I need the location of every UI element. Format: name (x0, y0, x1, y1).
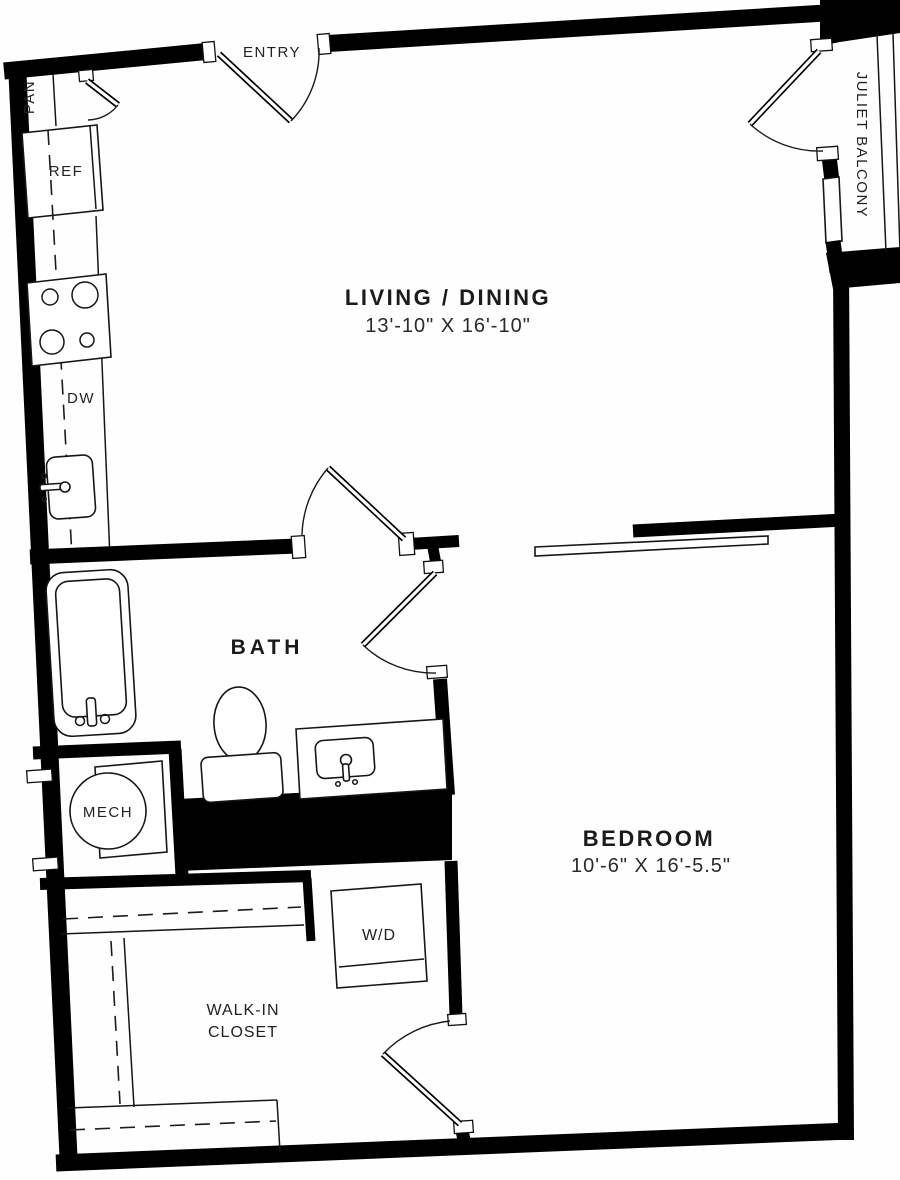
refrigerator-label: REF (49, 163, 84, 180)
bedroom-label: BEDROOM (583, 826, 715, 851)
walk-in-closet-label-line1: WALK-IN (206, 1002, 279, 1019)
wall-top-right (320, 12, 842, 44)
wall-top-left (4, 51, 211, 71)
wall-t-bar (409, 541, 459, 544)
vanity-faucet-stem (342, 764, 349, 781)
pantry-door-leaf (87, 81, 118, 105)
sliding-door-panel (535, 536, 768, 556)
tub-faucet (86, 698, 97, 726)
door-swing-arc (383, 1021, 450, 1054)
entry-label: ENTRY (243, 44, 301, 61)
door-leaf (383, 1054, 460, 1124)
dishwasher-label: DW (67, 390, 95, 407)
shelf-edge (60, 925, 304, 934)
wall-mech-top (33, 747, 181, 753)
living-dining-dims: 13'-10" X 16'-10" (365, 315, 531, 337)
juliet-balcony-label: JULIET BALCONY (853, 72, 870, 219)
door-jamb (448, 1013, 467, 1025)
door-jamb (79, 69, 94, 81)
balcony-door-leaf (750, 51, 819, 124)
sink-faucet-handle (60, 482, 70, 492)
bedroom-dims: 10'-6" X 16'-5.5" (571, 855, 731, 877)
closet-door (383, 1013, 473, 1133)
balcony-window (823, 177, 842, 243)
wall-bottom (56, 1131, 850, 1163)
door-jamb (817, 146, 839, 160)
shelf-edge (124, 938, 134, 1107)
door-jamb (291, 536, 306, 559)
floor-plan-drawing: ENTRY PAN REF DW JULIET BALCONY LIVING /… (0, 0, 900, 1180)
closet-rod-dashed (111, 941, 120, 1104)
exterior-walls (4, 12, 850, 1168)
door-swing-arc (302, 468, 328, 535)
wall-wd-stub (307, 878, 311, 941)
wall-closet-bedroom (451, 861, 456, 1016)
door-jamb (202, 42, 216, 63)
bath-door (363, 560, 447, 678)
closet-rod-dashed (70, 1121, 276, 1130)
washer-dryer-label: W/D (362, 927, 396, 944)
wall-bedroom-top (633, 520, 843, 531)
mech-label: MECH (83, 804, 133, 821)
toilet-tank (201, 752, 284, 802)
door-swing-arc (363, 645, 436, 673)
floor-plan: ENTRY PAN REF DW JULIET BALCONY LIVING /… (0, 0, 900, 1180)
pantry-door-swing-arc (88, 105, 118, 120)
shelf-edge (68, 1100, 277, 1108)
door-leaf (328, 468, 404, 539)
living-dining-label: LIVING / DINING (345, 285, 551, 310)
counter-edge (96, 216, 110, 559)
walk-in-closet-label-line2: CLOSET (208, 1024, 278, 1041)
wall-segment (833, 241, 837, 272)
bathtub-inner (55, 578, 127, 718)
wall-closet-top (40, 876, 311, 884)
door-jamb (33, 857, 59, 871)
pantry-label: PAN (21, 80, 38, 114)
door-jamb (27, 769, 53, 783)
door-jamb (427, 665, 448, 678)
juliet-balcony (750, 0, 900, 289)
wall-right (841, 266, 846, 1140)
wall-mech-right (175, 749, 182, 876)
toilet-bowl (211, 685, 268, 762)
door-leaf (363, 573, 435, 645)
closet-rod-dashed (63, 907, 301, 919)
bedroom-entry-door (291, 468, 415, 558)
wall-bath-top (30, 546, 297, 557)
balcony-door-swing-arc (750, 124, 823, 151)
bath-label: BATH (231, 636, 304, 659)
balcony-railing-line (877, 35, 886, 252)
balcony-railing-line (893, 34, 900, 251)
cooktop (27, 274, 111, 366)
door-jamb (811, 38, 833, 51)
shelf-edge (277, 1100, 280, 1152)
entry-door-leaf (219, 54, 291, 121)
sink-faucet (40, 483, 62, 491)
pantry-divider (53, 74, 56, 126)
